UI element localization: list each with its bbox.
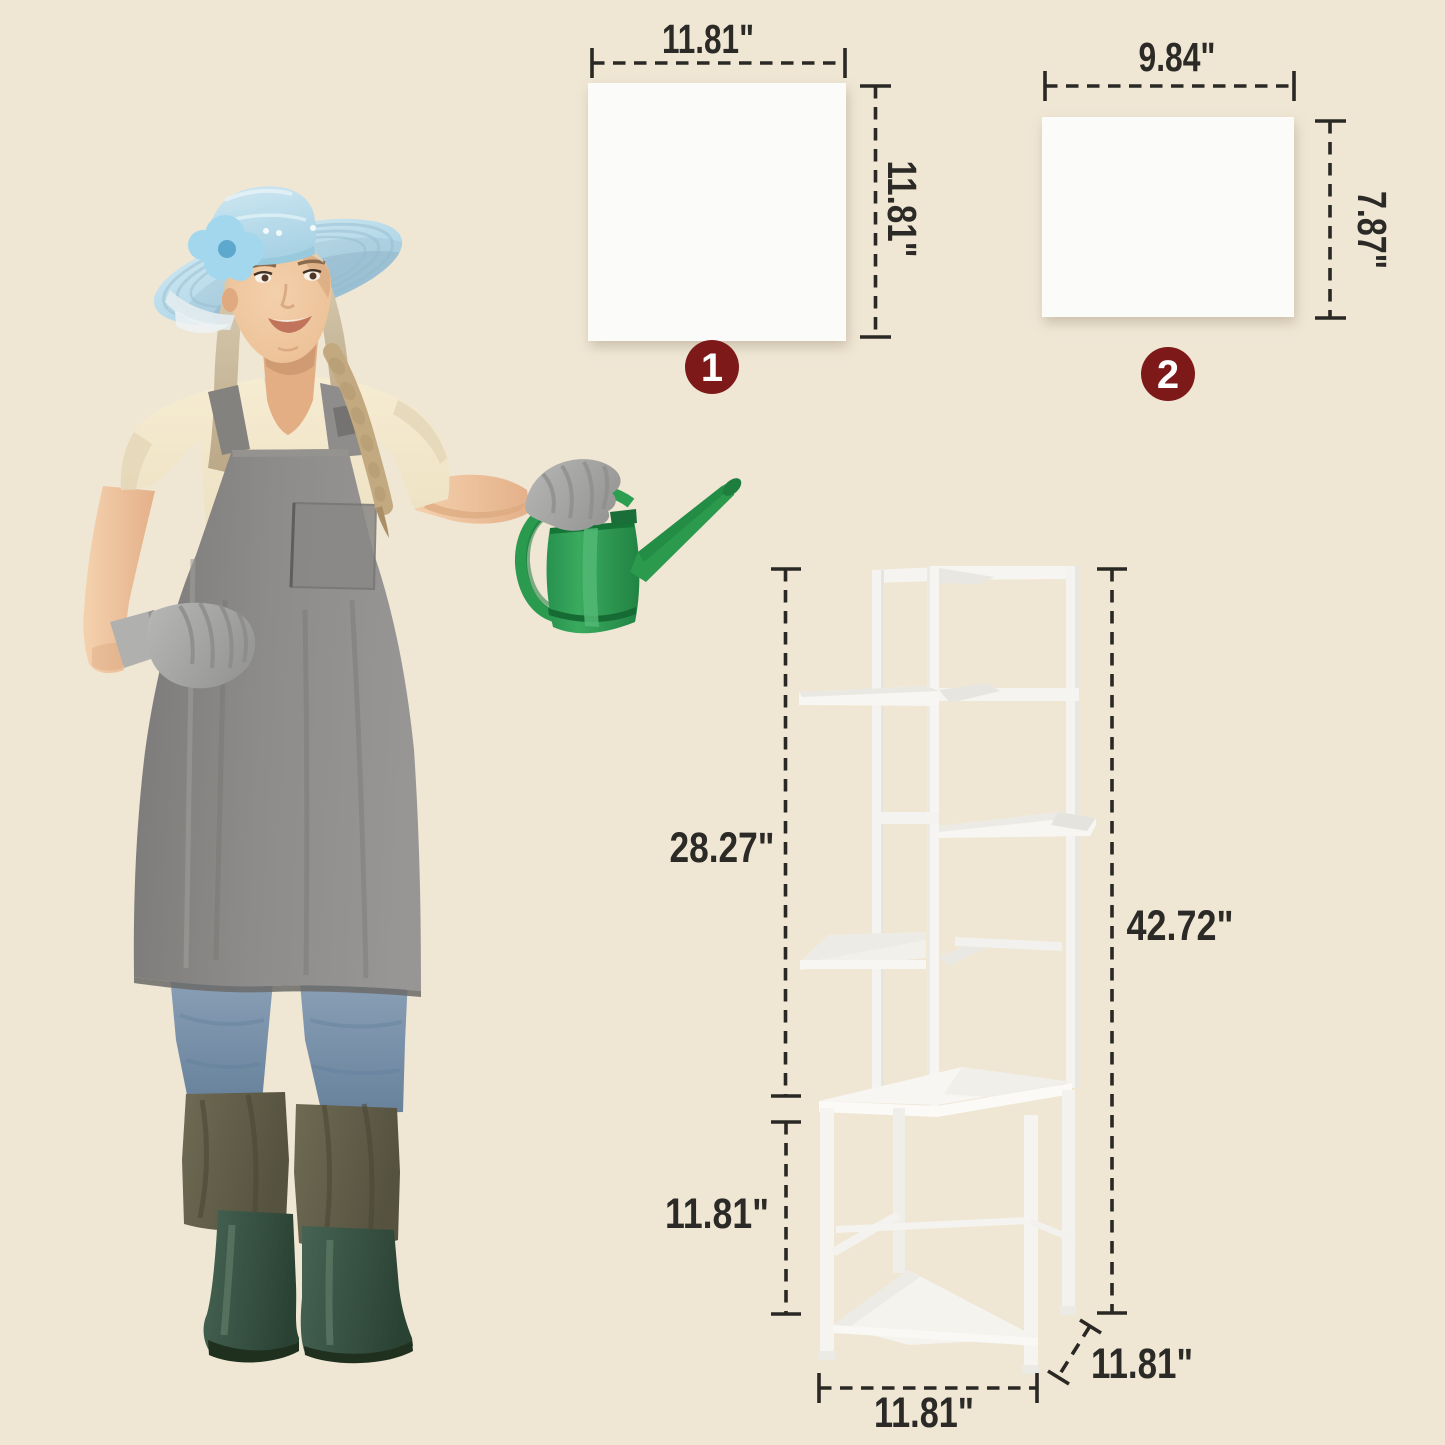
svg-text:28.27": 28.27" <box>670 824 775 872</box>
svg-text:2: 2 <box>1157 353 1179 397</box>
svg-text:11.81": 11.81" <box>1091 1340 1193 1388</box>
svg-text:1: 1 <box>701 346 723 390</box>
svg-text:11.81": 11.81" <box>662 16 754 62</box>
svg-text:11.81": 11.81" <box>874 1389 974 1437</box>
svg-text:42.72": 42.72" <box>1127 902 1234 950</box>
svg-text:11.81": 11.81" <box>665 1190 769 1238</box>
svg-text:11.81": 11.81" <box>879 161 925 258</box>
svg-text:9.84": 9.84" <box>1139 34 1216 80</box>
svg-text:7.87": 7.87" <box>1349 191 1395 269</box>
